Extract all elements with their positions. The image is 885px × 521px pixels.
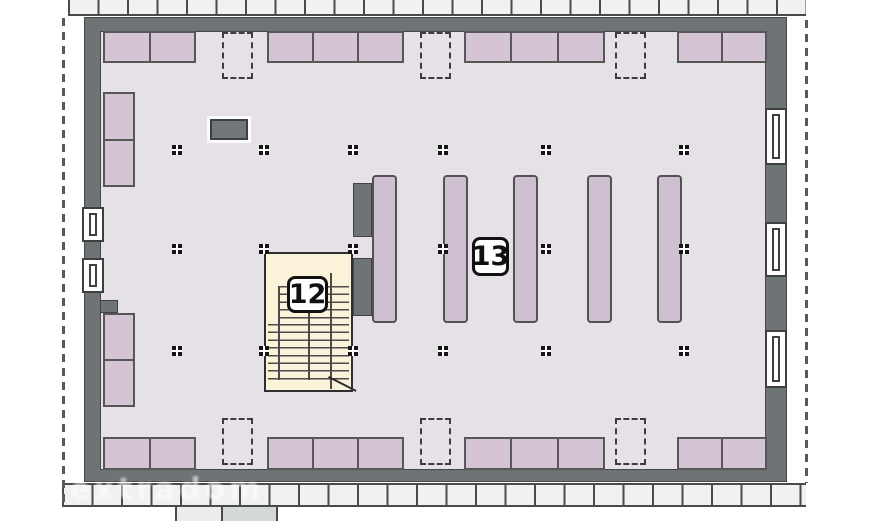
- watermark: extradom: [70, 472, 264, 507]
- cabinet-cell: [105, 315, 133, 359]
- room-label: 13: [472, 237, 509, 276]
- window-right: [765, 108, 787, 165]
- knee-wall-cabinet-left: [103, 92, 135, 187]
- roof-eaves-band-top: [68, 0, 806, 16]
- window-frame-inner: [89, 213, 97, 236]
- cabinet-cell: [679, 439, 721, 468]
- cabinet-cell: [557, 33, 603, 61]
- cabinet-cell: [357, 439, 402, 468]
- cabinet-cell: [312, 439, 357, 468]
- column-post: [541, 244, 551, 254]
- cabinet-cell: [149, 439, 195, 468]
- roof-outline-dashed-right: [805, 20, 808, 483]
- cabinet-cell: [105, 439, 149, 468]
- stair-side-wall: [353, 183, 372, 237]
- column-post: [348, 145, 358, 155]
- cabinet-cell: [721, 33, 765, 61]
- column-post: [438, 244, 448, 254]
- column-post: [348, 346, 358, 356]
- window-left: [82, 207, 104, 242]
- column-post: [259, 346, 269, 356]
- stair-center-line: [308, 312, 310, 380]
- floor-plan-canvas: 1213 extradom: [0, 0, 885, 521]
- knee-wall-cabinet-top: [103, 31, 196, 63]
- knee-wall-cabinet-bottom: [103, 437, 196, 470]
- skylight-dashed: [615, 32, 646, 79]
- column-post: [348, 244, 358, 254]
- cabinet-cell: [269, 439, 312, 468]
- column-post: [172, 346, 182, 356]
- cabinet-cell: [466, 33, 510, 61]
- skylight-dashed: [222, 32, 253, 79]
- cabinet-cell: [510, 33, 556, 61]
- cabinet-cell: [466, 439, 510, 468]
- collar-beam: [587, 175, 612, 323]
- window-left: [82, 258, 104, 293]
- skylight-dashed: [420, 418, 451, 465]
- collar-beam: [372, 175, 397, 323]
- column-post: [259, 244, 269, 254]
- window-right: [765, 222, 787, 277]
- column-post: [172, 145, 182, 155]
- skylight-dashed: [222, 418, 253, 465]
- cabinet-cell: [105, 359, 133, 405]
- cabinet-cell: [149, 33, 195, 61]
- window-frame-inner: [772, 228, 780, 271]
- stair-flight-divider-line: [278, 286, 280, 380]
- window-frame-inner: [772, 336, 780, 382]
- cabinet-cell: [357, 33, 402, 61]
- column-post: [259, 145, 269, 155]
- column-post: [438, 346, 448, 356]
- knee-wall-cabinet-left: [103, 313, 135, 407]
- cabinet-cell: [557, 439, 603, 468]
- cabinet-cell: [721, 439, 765, 468]
- cabinet-cell: [269, 33, 312, 61]
- column-post: [541, 145, 551, 155]
- cabinet-cell: [105, 33, 149, 61]
- window-frame-inner: [772, 114, 780, 159]
- knee-wall-cabinet-bottom: [464, 437, 605, 470]
- cabinet-cell: [679, 33, 721, 61]
- knee-wall-cabinet-bottom: [267, 437, 404, 470]
- column-post: [679, 145, 689, 155]
- stair-right-stringer-line: [330, 273, 332, 389]
- cabinet-cell: [312, 33, 357, 61]
- wall-notch: [100, 300, 118, 313]
- knee-wall-cabinet-bottom: [677, 437, 767, 470]
- collar-beam: [513, 175, 538, 323]
- skylight-dashed: [420, 32, 451, 79]
- knee-wall-cabinet-top: [677, 31, 767, 63]
- window-right: [765, 330, 787, 388]
- room-label: 12: [287, 276, 328, 313]
- skylight-dashed: [615, 418, 646, 465]
- staircase: [264, 252, 353, 392]
- knee-wall-cabinet-top: [267, 31, 404, 63]
- chimney: [210, 119, 248, 140]
- cabinet-cell: [510, 439, 556, 468]
- column-post: [679, 244, 689, 254]
- lower-roof-section-left: [175, 505, 223, 521]
- column-post: [438, 145, 448, 155]
- stair-side-wall: [353, 258, 372, 316]
- window-frame-inner: [89, 264, 97, 287]
- cabinet-cell: [105, 139, 133, 186]
- roof-outline-dashed-left: [62, 18, 65, 506]
- column-post: [679, 346, 689, 356]
- cabinet-cell: [105, 94, 133, 139]
- knee-wall-cabinet-top: [464, 31, 605, 63]
- lower-roof-section-right: [221, 505, 278, 521]
- column-post: [172, 244, 182, 254]
- column-post: [541, 346, 551, 356]
